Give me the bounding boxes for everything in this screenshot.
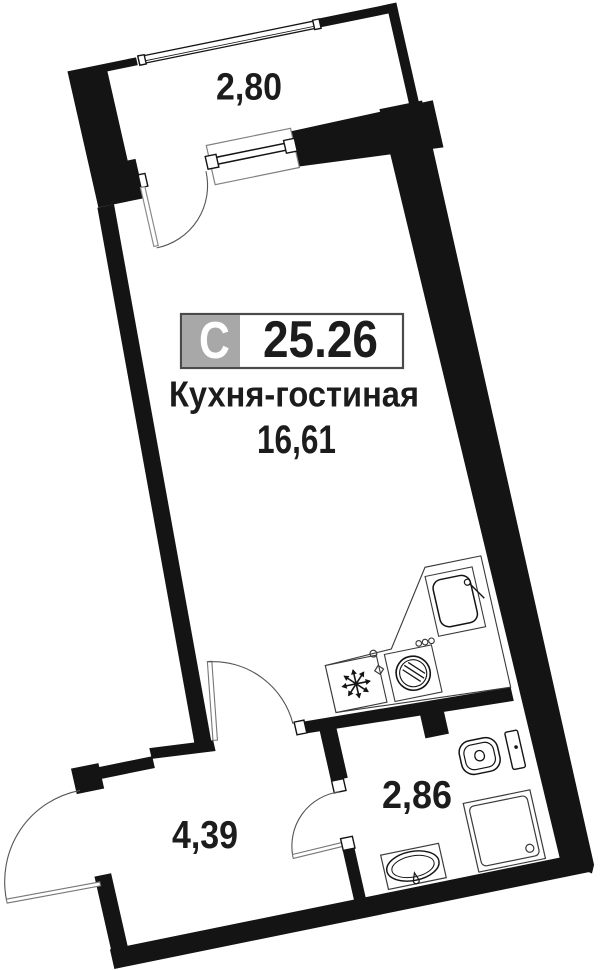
svg-text:С: С bbox=[199, 312, 230, 370]
svg-text:25.26: 25.26 bbox=[263, 311, 378, 369]
svg-text:4,39: 4,39 bbox=[172, 814, 238, 857]
svg-text:Кухня-гостиная: Кухня-гостиная bbox=[169, 374, 419, 415]
svg-text:2,80: 2,80 bbox=[216, 67, 282, 109]
svg-text:2,86: 2,86 bbox=[382, 774, 452, 817]
svg-text:16,61: 16,61 bbox=[257, 418, 336, 462]
